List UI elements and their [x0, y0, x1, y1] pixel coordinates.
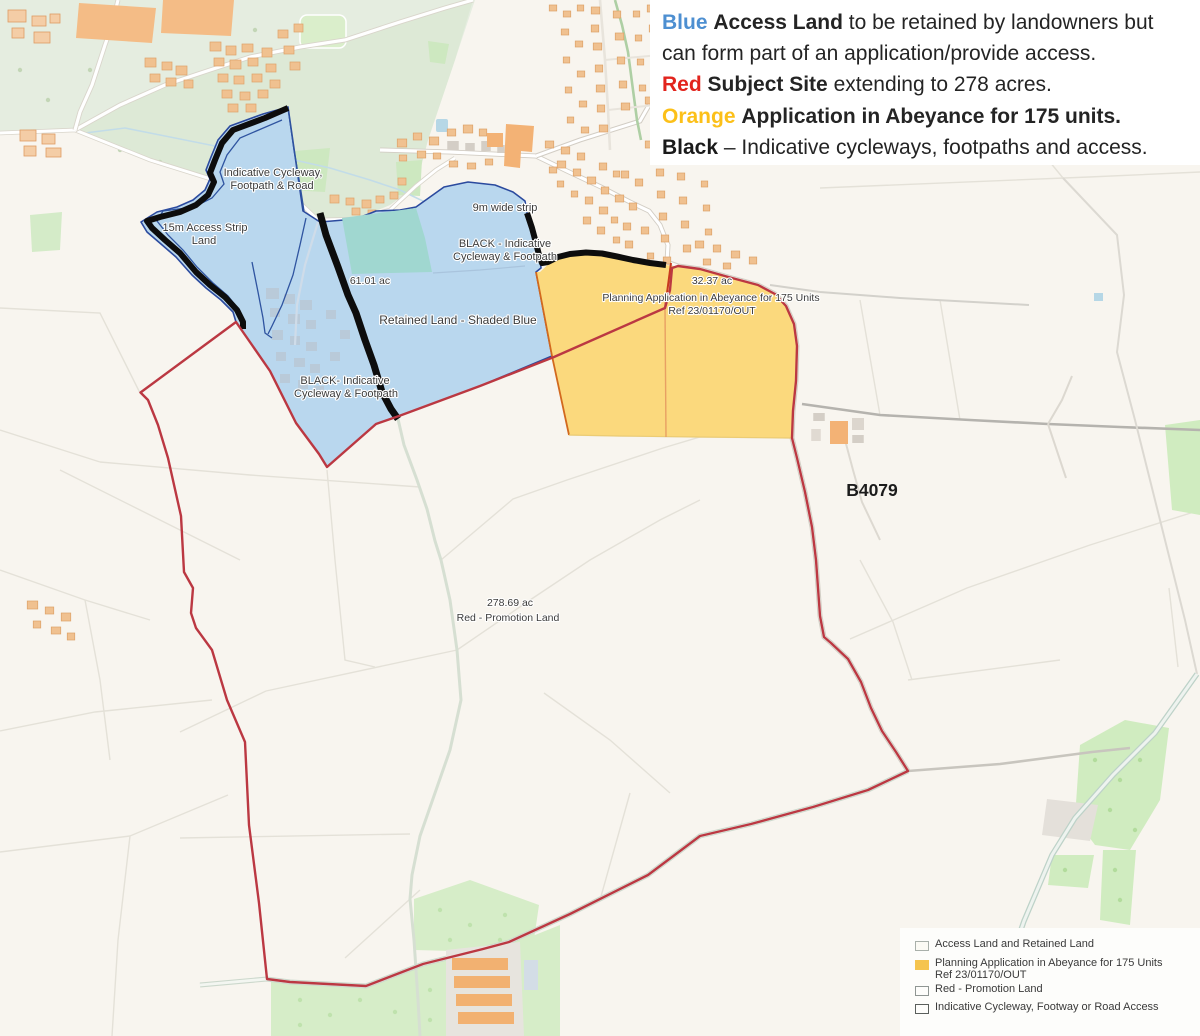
svg-text:Red - Promotion Land: Red - Promotion Land: [457, 612, 560, 624]
svg-text:BLACK- Indicative: BLACK- Indicative: [300, 375, 389, 387]
svg-text:Planning Application in Abeyan: Planning Application in Abeyance for 175…: [602, 292, 819, 304]
svg-text:9m wide strip: 9m wide strip: [473, 202, 538, 214]
svg-text:61.01 ac: 61.01 ac: [350, 275, 390, 287]
svg-text:Cycleway & Footpath: Cycleway & Footpath: [294, 388, 398, 400]
svg-text:Footpath & Road: Footpath & Road: [230, 180, 313, 192]
svg-text:Cycleway & Footpath: Cycleway & Footpath: [453, 251, 557, 263]
svg-text:15m Access Strip: 15m Access Strip: [163, 222, 248, 234]
svg-text:Land: Land: [192, 235, 216, 247]
svg-text:278.69 ac: 278.69 ac: [487, 597, 533, 609]
svg-text:Retained Land - Shaded Blue: Retained Land - Shaded Blue: [379, 313, 537, 327]
svg-text:Indicative Cycleway,: Indicative Cycleway,: [224, 167, 323, 179]
svg-text:B4079: B4079: [846, 480, 898, 500]
svg-text:32.37 ac: 32.37 ac: [692, 275, 732, 287]
svg-text:Ref 23/01170/OUT: Ref 23/01170/OUT: [668, 305, 756, 317]
svg-text:BLACK - Indicative: BLACK - Indicative: [459, 238, 551, 250]
